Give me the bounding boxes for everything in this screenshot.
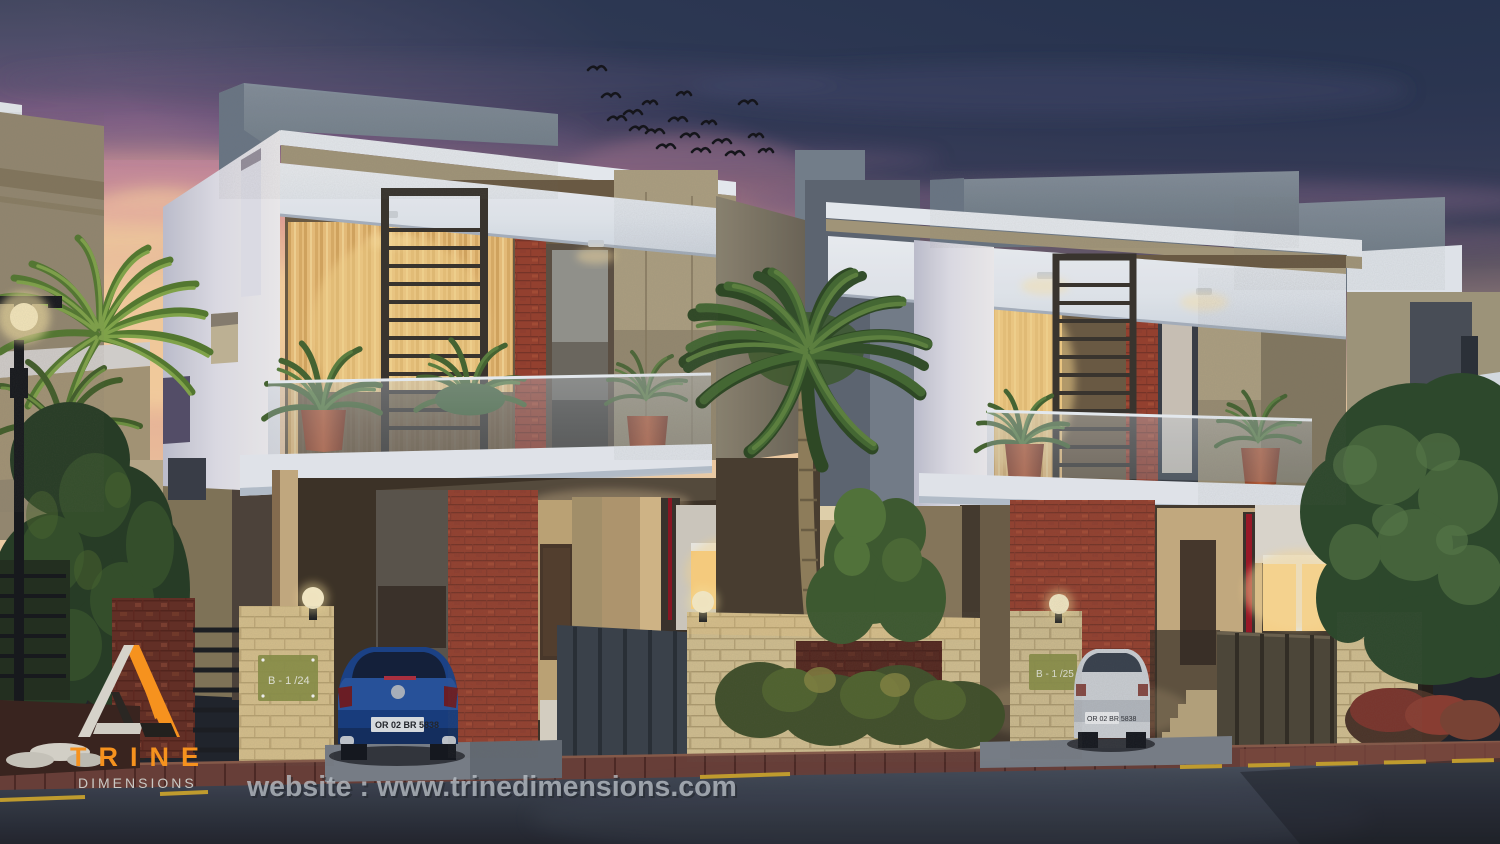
svg-text:TRINE: TRINE	[70, 742, 211, 772]
svg-text:website : www.trinedimensions.: website : www.trinedimensions.com	[246, 771, 737, 803]
svg-text:DIMENSIONS: DIMENSIONS	[78, 775, 197, 791]
